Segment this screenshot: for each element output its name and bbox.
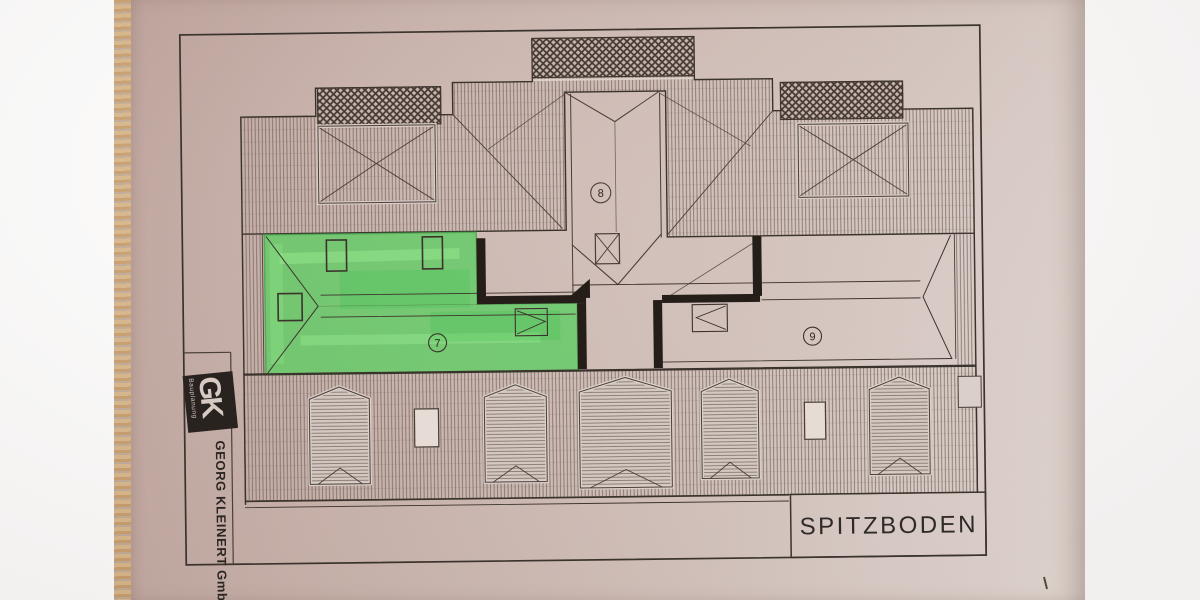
chimney-hatch-center <box>532 37 694 80</box>
room-9-label: 9 <box>809 331 815 343</box>
flue-symbol-room-8 <box>595 234 619 264</box>
plan-title: SPITZBODEN <box>800 511 979 540</box>
dormer-2 <box>484 384 547 482</box>
photo-of-floor-plan: 8 <box>0 0 1200 600</box>
skylight-1 <box>414 409 438 447</box>
plan-title-box: SPITZBODEN <box>790 492 986 557</box>
dormer-3 <box>579 377 672 488</box>
hatch-access-room-9 <box>692 304 727 331</box>
floor-plan: 8 <box>240 33 983 507</box>
drawing: 8 <box>178 25 986 600</box>
company-name: GEORG KLEINERT GmbH <box>213 440 230 600</box>
room-8-label: 8 <box>598 188 604 200</box>
plan-drawing-svg: 8 <box>0 0 1200 600</box>
roof-edge-notch <box>958 376 981 407</box>
room-9-lines <box>572 236 951 364</box>
dormer-5 <box>869 377 930 475</box>
dormer-4 <box>701 379 759 479</box>
dormer-1 <box>309 387 370 485</box>
chimney-hatch-left <box>317 87 440 125</box>
photo-artifact-tick <box>1044 577 1047 589</box>
title-block: Bauplanung GK GEORG KLEINERT GmbH <box>182 352 240 600</box>
room-7-label: 7 <box>434 338 440 350</box>
skylight-2 <box>804 402 825 439</box>
gk-monogram: GK <box>192 375 229 420</box>
company-logo: Bauplanung GK <box>183 371 238 433</box>
chimney-hatch-right <box>780 81 902 119</box>
